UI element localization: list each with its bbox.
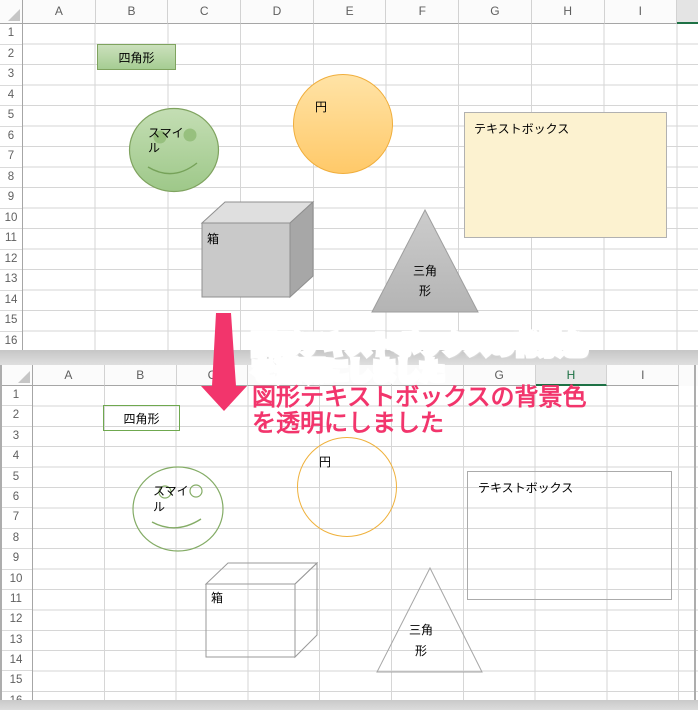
column-header[interactable]: G xyxy=(459,0,532,24)
shape-cube-filled[interactable] xyxy=(198,198,318,300)
triangle-label: 三角 形 xyxy=(404,261,446,301)
row-header[interactable]: 13 xyxy=(0,270,22,291)
row-header[interactable]: 7 xyxy=(0,147,22,168)
row-header[interactable]: 1 xyxy=(0,386,32,406)
smiley-label: スマイ ル xyxy=(148,126,206,156)
row-header[interactable]: 16 xyxy=(0,332,22,353)
column-header[interactable]: H xyxy=(532,0,605,24)
column-header[interactable]: B xyxy=(105,365,177,386)
shape-rectangle-filled[interactable]: 四角形 xyxy=(97,44,176,70)
select-all-triangle-icon xyxy=(18,371,30,383)
column-headers: ABCDEFGHI xyxy=(23,0,698,24)
annotation-text-outline: 図形テキストボックスの背景色 を透明にしました xyxy=(252,333,587,385)
shape-cube-transparent[interactable] xyxy=(202,559,320,661)
window-edge-left xyxy=(0,365,2,700)
shape-circle-transparent[interactable] xyxy=(297,437,397,537)
select-all-corner[interactable] xyxy=(0,365,33,386)
screenshot-root: ABCDEFGHI 12345678910111213141516 四角形 スマ… xyxy=(0,0,698,710)
circle-label: 円 xyxy=(319,453,331,470)
column-header[interactable]: I xyxy=(605,0,678,24)
row-header[interactable]: 1 xyxy=(0,24,22,45)
column-header[interactable]: B xyxy=(96,0,169,24)
circle-label: 円 xyxy=(315,98,327,115)
column-header[interactable]: I xyxy=(607,365,679,386)
row-header[interactable]: 12 xyxy=(0,610,32,630)
column-header[interactable]: C xyxy=(168,0,241,24)
row-header[interactable]: 12 xyxy=(0,250,22,271)
row-header[interactable]: 11 xyxy=(0,590,32,610)
shape-textbox-filled[interactable]: テキストボックス xyxy=(464,112,667,238)
row-header[interactable]: 7 xyxy=(0,508,32,528)
shape-rectangle-transparent[interactable]: 四角形 xyxy=(103,405,180,431)
select-all-triangle-icon xyxy=(8,9,20,21)
row-header[interactable]: 14 xyxy=(0,291,22,312)
triangle-label: 三角 形 xyxy=(399,620,443,662)
column-header[interactable]: F xyxy=(386,0,459,24)
row-header[interactable]: 5 xyxy=(0,106,22,127)
bottom-gray-bar xyxy=(0,700,698,710)
row-header[interactable]: 2 xyxy=(0,406,32,426)
down-arrow-annotation[interactable] xyxy=(196,310,252,415)
row-header[interactable]: 11 xyxy=(0,229,22,250)
row-header[interactable]: 8 xyxy=(0,529,32,549)
select-all-corner[interactable] xyxy=(0,0,23,24)
shape-circle-filled[interactable] xyxy=(293,74,393,174)
row-header[interactable]: 9 xyxy=(0,188,22,209)
row-header[interactable]: 4 xyxy=(0,447,32,467)
column-header[interactable]: A xyxy=(23,0,96,24)
row-header[interactable]: 10 xyxy=(0,570,32,590)
row-header[interactable]: 9 xyxy=(0,549,32,569)
row-header[interactable]: 6 xyxy=(0,488,32,508)
row-header[interactable]: 2 xyxy=(0,45,22,66)
row-headers: 12345678910111213141516 xyxy=(0,24,23,352)
row-header[interactable]: 15 xyxy=(0,671,32,691)
row-header[interactable]: 3 xyxy=(0,65,22,86)
row-header[interactable]: 10 xyxy=(0,209,22,230)
row-header[interactable]: 4 xyxy=(0,86,22,107)
shape-textbox-transparent[interactable]: テキストボックス xyxy=(467,471,672,600)
smiley-label: スマイ ル xyxy=(153,483,211,515)
column-header[interactable]: A xyxy=(33,365,105,386)
row-header[interactable]: 5 xyxy=(0,468,32,488)
annotation-text[interactable]: 図形テキストボックスの背景色 を透明にしました 図形テキストボックスの背景色 を… xyxy=(252,333,587,437)
row-header[interactable]: 8 xyxy=(0,168,22,189)
row-headers: 12345678910111213141516 xyxy=(0,386,33,710)
cube-label: 箱 xyxy=(207,230,219,247)
row-header[interactable]: 3 xyxy=(0,427,32,447)
row-header[interactable]: 6 xyxy=(0,127,22,148)
row-header[interactable]: 13 xyxy=(0,631,32,651)
row-header[interactable]: 14 xyxy=(0,651,32,671)
column-header[interactable]: D xyxy=(241,0,314,24)
cube-label: 箱 xyxy=(211,589,223,606)
row-header[interactable]: 15 xyxy=(0,311,22,332)
window-edge-right xyxy=(694,365,696,700)
column-header-partial-selected[interactable] xyxy=(677,0,698,24)
column-header[interactable]: E xyxy=(314,0,387,24)
annotation-text-fill: 図形テキストボックスの背景色 を透明にしました xyxy=(252,384,587,437)
